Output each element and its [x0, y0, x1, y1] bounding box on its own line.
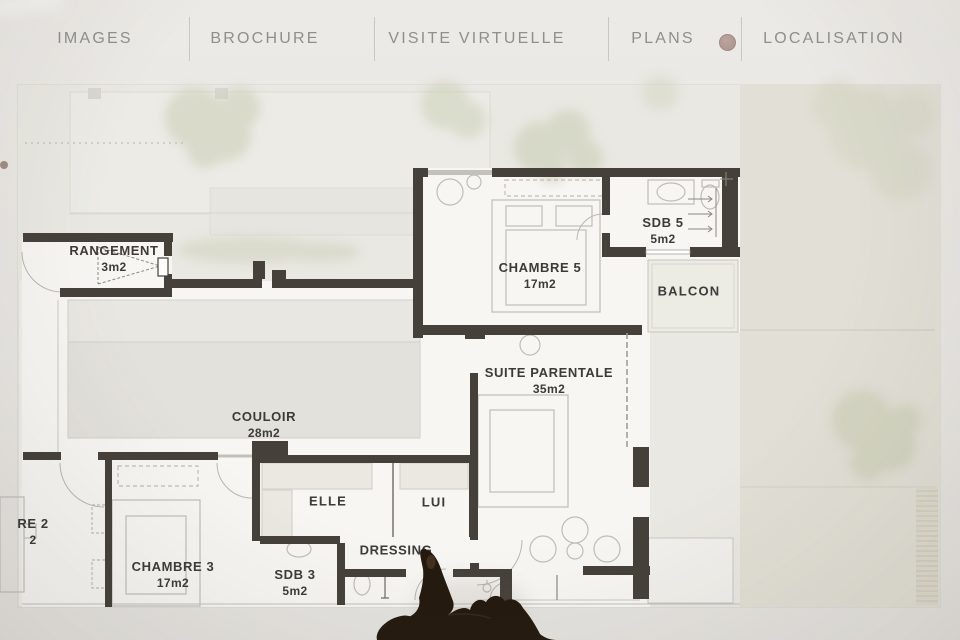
- user-hand-layer: [0, 0, 960, 640]
